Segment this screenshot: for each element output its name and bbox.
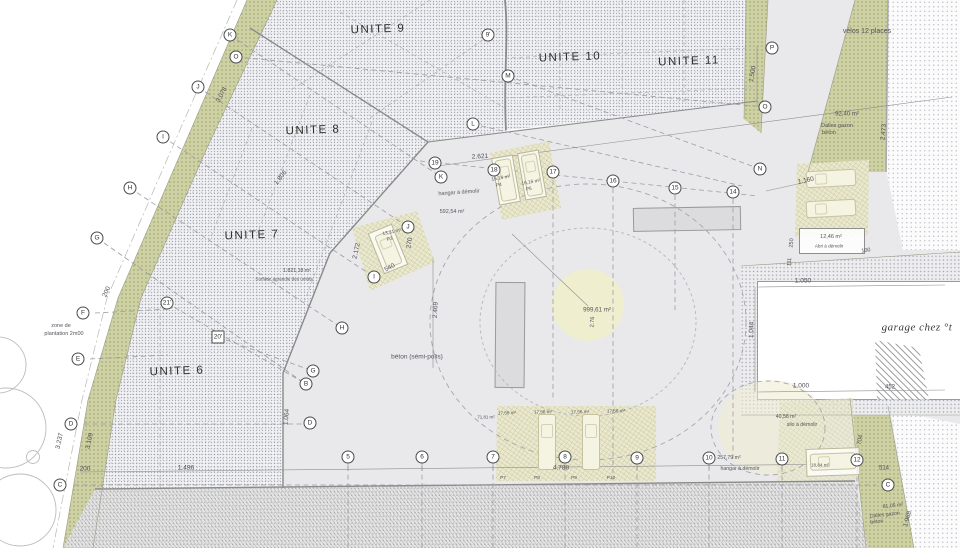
grid-marker-18: 18 — [488, 164, 501, 177]
note-label: 17,56 m² — [571, 409, 589, 415]
grid-marker-17: 17 — [547, 166, 560, 179]
dimension-label: 514 — [879, 466, 889, 473]
dimension-label: 2.473 — [880, 124, 889, 141]
unit-label: UNITE 8 — [285, 123, 340, 138]
unit-label: UNITE 7 — [224, 228, 279, 243]
grid-marker-I: I — [368, 271, 381, 284]
grid-marker-21': 21' — [161, 297, 174, 310]
dimension-label: 2.469 — [432, 302, 440, 319]
grid-marker-9: 9 — [631, 452, 644, 465]
dimension-label: 1.050 — [795, 277, 811, 284]
note-label: 12,46 m² — [820, 234, 842, 240]
dimension-label: 1.496 — [178, 464, 194, 471]
grid-marker-K: K — [435, 171, 448, 184]
grid-marker-B: B — [300, 378, 313, 391]
note-label: hangar à démolir — [721, 467, 760, 473]
note-label: béton — [822, 130, 836, 136]
note-label: garage chez °t — [882, 322, 953, 335]
grid-marker-D: D — [304, 417, 317, 430]
grid-marker-5: 5 — [342, 451, 355, 464]
note-label: silo à démolir — [787, 423, 818, 429]
grid-marker-I: I — [157, 131, 170, 144]
grid-marker-M: M — [502, 70, 515, 83]
unit-label: UNITE 10 — [539, 50, 602, 65]
grid-marker-H: H — [336, 322, 349, 335]
car-icon — [538, 414, 556, 470]
grid-marker-F: F — [77, 307, 90, 320]
note-label: 17,56 m² — [607, 408, 625, 414]
unit-label: UNITE 6 — [149, 364, 204, 379]
grid-marker-19: 19 — [429, 157, 442, 170]
grid-marker-16: 16 — [607, 175, 620, 188]
note-label: 999,61 m² — [583, 306, 611, 313]
grid-marker-O: O — [230, 51, 243, 64]
dimension-label: 452 — [885, 385, 895, 392]
grid-marker-P: P — [766, 42, 779, 55]
grid-marker-K: K — [224, 29, 237, 42]
note-label: 17,56 m² — [498, 410, 516, 416]
grid-marker-C: C — [882, 479, 895, 492]
grid-marker-8: 8 — [559, 451, 572, 464]
note-label: Dalles gazon — [821, 123, 853, 129]
dimension-label: 100 — [861, 247, 871, 255]
grid-marker-G: G — [307, 365, 320, 378]
note-label: 257,79 m² — [717, 456, 740, 462]
grid-marker-E: E — [72, 353, 85, 366]
note-label: 1.821,18 m² — [283, 269, 311, 275]
grid-marker-G: G — [91, 232, 104, 245]
note-label: P10 — [607, 476, 616, 482]
dimension-label: 250 — [788, 238, 795, 248]
note-label: Abri à démolir — [815, 243, 843, 248]
grid-marker-9': 9' — [482, 29, 495, 42]
note-label: P7 — [500, 476, 506, 482]
note-label: 17,56 m² — [534, 409, 552, 415]
note-label: 18,84 m² — [811, 462, 829, 467]
car-icon — [582, 414, 600, 470]
note-label: 71,81 m² — [477, 414, 494, 419]
grid-marker-20': 20' — [212, 331, 225, 344]
grid-marker-14: 14 — [727, 186, 740, 199]
dimension-label: 1.044 — [748, 322, 756, 339]
dimension-label: 111 — [786, 258, 793, 267]
dimension-label: 200 — [80, 465, 91, 472]
grid-marker-D: D — [65, 418, 78, 431]
note-label: zone de — [51, 323, 71, 329]
grid-marker-C: C — [54, 479, 67, 492]
grid-marker-11: 11 — [776, 453, 789, 466]
note-label: 592,54 m² — [440, 209, 465, 215]
dimension-label: 1.064 — [283, 409, 292, 426]
grid-marker-15: 15 — [669, 182, 682, 195]
grid-marker-7: 7 — [487, 451, 500, 464]
grid-marker-J: J — [192, 81, 205, 94]
unit-label: UNITE 11 — [658, 54, 720, 69]
grid-marker-L: L — [467, 118, 480, 131]
note-label: P4 — [496, 183, 503, 189]
dimension-label: 4.788 — [553, 464, 569, 471]
note-label: vélos 12 places — [843, 28, 891, 36]
grid-marker-H: H — [124, 182, 137, 195]
site-plan-canvas: { "colors":{"olive_band":"#cdd1a3","park… — [0, 0, 960, 548]
note-label: béton (sémi-polis) — [391, 353, 443, 360]
note-label: plantation 2m00 — [44, 331, 83, 337]
grid-marker-6: 6 — [416, 451, 429, 464]
note-label: P9 — [571, 476, 577, 482]
note-label: Surface agrandie des unités — [255, 276, 312, 281]
dimension-label: 1.000 — [793, 382, 809, 389]
grid-marker-J: J — [402, 221, 415, 234]
grid-marker-O: O — [759, 101, 772, 114]
dimension-label: 2.76 — [590, 316, 597, 327]
note-label: 92,40 m² — [835, 112, 859, 119]
note-label: 40,58 m² — [776, 415, 796, 421]
note-label: P8 — [534, 476, 540, 482]
note-label: P5 — [526, 187, 533, 193]
grid-marker-12: 12 — [851, 454, 864, 467]
grid-marker-N: N — [754, 163, 767, 176]
grid-marker-10: 10 — [703, 452, 716, 465]
dimension-label: 2.621 — [472, 153, 489, 161]
car-icon — [806, 199, 857, 219]
unit-label: UNITE 9 — [350, 22, 405, 37]
